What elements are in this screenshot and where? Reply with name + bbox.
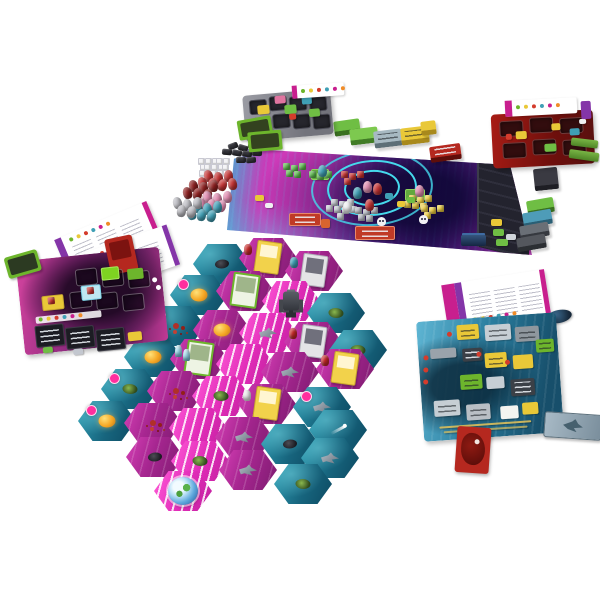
player-board-blue [416,312,564,441]
game-tile [456,324,479,340]
marker-dot [152,277,157,282]
tech-minicard [95,327,126,352]
tile-art [470,407,487,417]
cardYellow-marker [330,351,359,386]
pink-board-tiles [15,247,168,356]
earth-marker [168,477,198,505]
game-tile [430,347,457,359]
hex-tile-pink [219,450,277,490]
tile-art [519,329,536,339]
tile-art [539,342,552,350]
planet-marker [214,324,231,337]
tile-art [464,377,480,386]
tile-art [438,403,456,413]
red-playing-piece [289,328,297,339]
tile-art [460,327,476,336]
game-tile [43,346,54,353]
game-tile [460,374,483,390]
game-tile [536,338,555,352]
resource-cube [87,287,95,295]
tile-art [514,382,531,393]
marker-dot [423,355,428,360]
teal-playing-piece [290,257,298,268]
cardGreen-marker [229,272,260,309]
event-badge [301,391,312,402]
event-badge [109,373,120,384]
bugGreen-marker [329,308,344,318]
hex-tile-teal [274,464,332,504]
tech-minicard [65,325,96,350]
alien-card [454,426,491,474]
cardYellow-marker [252,386,281,421]
bugGreen-marker [214,391,229,401]
game-tile [500,405,519,419]
bugGreen-marker [193,456,208,466]
game-tile [522,402,539,415]
board-slot [122,293,146,312]
mech-marker [283,292,299,311]
resource-cube [47,297,55,305]
game-tile [434,399,461,417]
alien-icon [460,432,486,466]
game-tile [127,331,142,341]
bugGreen-marker [296,479,311,489]
bugRed-marker [150,420,156,426]
red-playing-piece [244,244,252,255]
hex-tile-pink [316,349,374,389]
earth-start-tile [154,471,212,511]
tile-art [488,355,504,364]
planet-marker [191,289,208,302]
blue-board-tiles [416,312,564,441]
player-board-pink [15,247,168,356]
planet-marker [145,351,162,364]
white-playing-piece [243,390,251,401]
marker-dot [423,367,428,372]
crystal-playing-piece [183,349,190,361]
game-tile [513,354,534,369]
bugRed-marker [173,388,179,394]
game-tile [510,378,535,397]
game-tile [484,323,511,341]
tile-art [40,329,60,343]
bugRed-marker [173,323,179,329]
red-playing-piece [321,355,329,366]
game-tile [466,403,491,421]
game-tile [484,352,507,368]
planet-marker [99,415,116,428]
event-badge [86,405,97,416]
crystal-playing-piece [175,345,182,357]
tech-minicard [34,323,65,348]
marker-dot [423,379,428,384]
cardYellow-marker [253,240,282,275]
tile-art [101,332,121,346]
tile-art [70,331,90,345]
marker-dot [505,360,510,365]
game-tile [101,266,120,281]
game-tile [73,348,84,355]
board-game-product-photo [0,0,600,600]
ship-card [543,411,600,441]
game-tile [486,376,505,389]
game-tile [127,268,144,281]
marker-dot [447,332,452,337]
ship-icon [563,418,584,432]
event-badge [178,279,189,290]
bugGreen-marker [123,384,138,394]
tile-art [489,327,507,337]
marker-dot [156,285,161,290]
